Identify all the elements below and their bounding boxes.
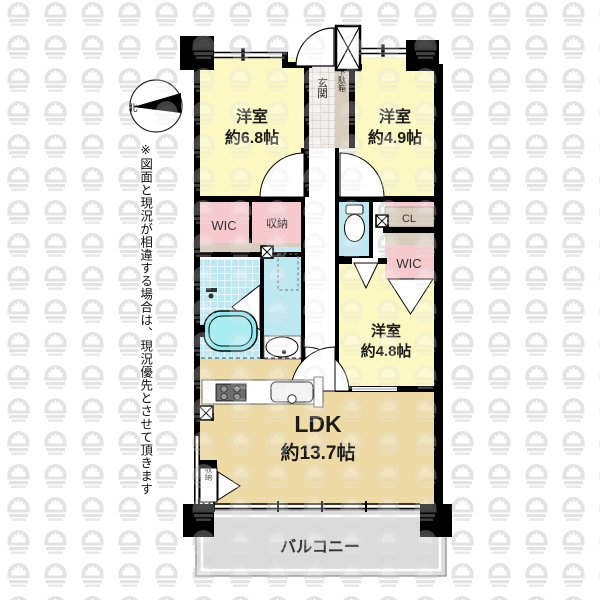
kitchen-faucet bbox=[288, 395, 296, 403]
toilet-fixture bbox=[345, 205, 365, 242]
stove-burner-4 bbox=[234, 393, 240, 399]
window-b-tick bbox=[382, 45, 384, 56]
wall-wic-closet-divider bbox=[249, 200, 252, 243]
room-c-size: 約4.8帖 bbox=[361, 342, 412, 360]
pillar-top-left bbox=[180, 36, 214, 70]
wic-left-label: WIC bbox=[211, 218, 236, 233]
window-left-line1 bbox=[194, 436, 196, 506]
stove-burner-2 bbox=[234, 386, 240, 392]
pillar-bottom-right bbox=[420, 504, 452, 537]
floor-plan-canvas: 洋室 約6.8帖 洋室 約4.9帖 洋室 約4.8帖 LDK 約13.7帖 バル… bbox=[0, 0, 600, 600]
cl-wall bbox=[383, 227, 434, 233]
room-a-name: 洋室 bbox=[236, 107, 268, 126]
wall-bath-washroom bbox=[260, 259, 264, 359]
kitchen-fixture bbox=[202, 377, 323, 407]
stove bbox=[216, 384, 246, 401]
shoe-box-label: 下駄箱 bbox=[338, 68, 347, 93]
vent-toilet bbox=[376, 215, 388, 227]
toilet-bowl bbox=[345, 215, 365, 242]
wall-right bbox=[434, 64, 443, 506]
pillar-top-right bbox=[406, 40, 439, 71]
closet-ldk-label: 収納 bbox=[204, 465, 213, 482]
shower-fixture bbox=[206, 288, 217, 292]
room-a-size: 約6.8帖 bbox=[225, 128, 279, 147]
window-a-tick bbox=[242, 49, 244, 60]
wall-hall-right bbox=[335, 148, 339, 392]
room-b-size: 約4.9帖 bbox=[368, 128, 422, 147]
wic-right-shelf bbox=[385, 233, 434, 245]
ps-box bbox=[336, 26, 360, 70]
room-c-name: 洋室 bbox=[371, 322, 401, 340]
wall-toilet-right bbox=[369, 200, 373, 260]
wall-below-closets bbox=[200, 252, 302, 257]
entrance-label: 玄関 bbox=[316, 77, 328, 100]
washstand-drain bbox=[282, 350, 286, 354]
shower-drain bbox=[209, 294, 214, 299]
balcony-window-tick2 bbox=[321, 501, 323, 512]
wall-genkan-right bbox=[349, 66, 355, 148]
balcony-window-tick3 bbox=[365, 501, 367, 512]
toilet-tank bbox=[346, 205, 363, 214]
room-b-name: 洋室 bbox=[379, 107, 411, 126]
compass-north-label: 北 bbox=[128, 103, 137, 113]
cl-label: CL bbox=[402, 213, 416, 225]
closet-mid-label: 収納 bbox=[266, 217, 288, 230]
balcony-label: バルコニー bbox=[280, 538, 360, 556]
disclaimer-text: ※図面と現況が相違する場合は、現況優先とさせて頂きます bbox=[138, 142, 151, 472]
washstand-bowl bbox=[266, 337, 298, 357]
ldk-name: LDK bbox=[294, 411, 342, 437]
stove-burner-1 bbox=[221, 386, 227, 392]
pillar-bottom-left bbox=[183, 504, 214, 537]
bathtub-faucet bbox=[200, 325, 205, 337]
wic-right-label: WIC bbox=[396, 256, 421, 271]
vent-kitchen bbox=[199, 406, 213, 420]
balcony-window-tick1 bbox=[277, 501, 279, 512]
kitchen-counter-end bbox=[314, 377, 323, 407]
bathtub-inner bbox=[209, 316, 252, 346]
vent-washroom bbox=[261, 246, 273, 258]
stove-burner-3 bbox=[221, 393, 227, 399]
ldk-size: 約13.7帖 bbox=[281, 441, 356, 464]
wall-left bbox=[194, 62, 200, 436]
